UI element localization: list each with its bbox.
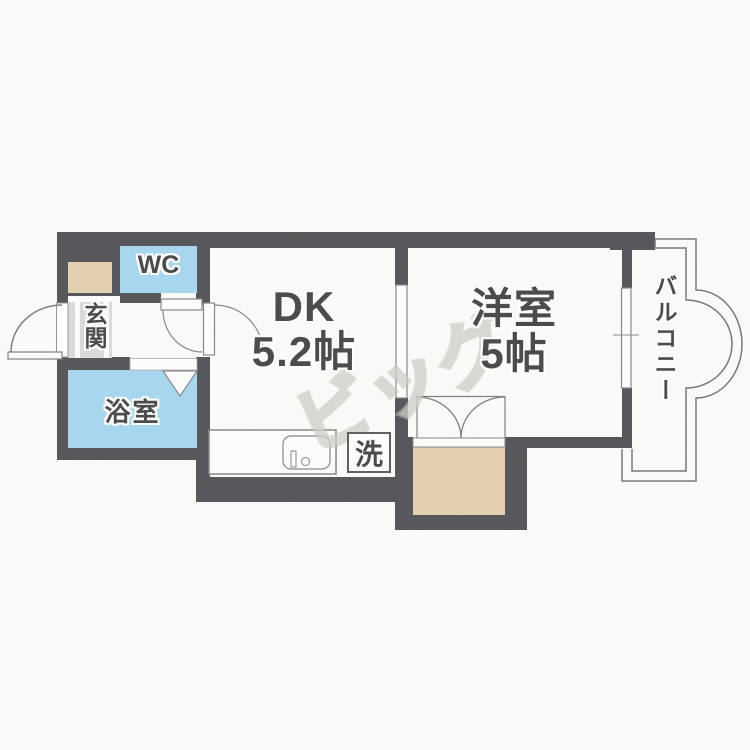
wall-left xyxy=(57,232,68,460)
dining-kitchen-name: DK xyxy=(212,284,396,329)
shoe-cabinet xyxy=(68,262,112,293)
dining-kitchen-size: 5.2帖 xyxy=(212,329,396,374)
faucet-icon xyxy=(291,451,296,467)
wall-dk-west-upper xyxy=(395,248,408,285)
wall-right-upper xyxy=(622,248,632,288)
wall-closet-bottom xyxy=(395,515,527,530)
floor-plan: ビッグ WC 玄関 浴室 DK 5.2帖 洋室 5帖 バルコニー 洗 xyxy=(0,0,750,750)
wall-bath-bottom xyxy=(57,448,210,460)
entrance-label: 玄関 xyxy=(77,302,111,362)
dining-kitchen-label: DK 5.2帖 xyxy=(212,284,396,374)
wall-below-wc xyxy=(120,293,161,303)
wall-top-right-pillar xyxy=(610,232,655,250)
western-room-name: 洋室 xyxy=(407,286,621,331)
washing-machine-box: 洗 xyxy=(347,432,391,473)
bathroom-label: 浴室 xyxy=(68,392,197,429)
western-room-label: 洋室 5帖 xyxy=(407,286,621,376)
drain-icon xyxy=(302,458,310,466)
wc-label: WC xyxy=(120,251,197,280)
closet-floor xyxy=(413,447,505,515)
western-room-size: 5帖 xyxy=(407,331,621,376)
wall-right-lower xyxy=(622,388,632,448)
wall-wc-dk xyxy=(196,232,210,305)
balcony-label: バルコニー xyxy=(647,274,681,434)
wc-door xyxy=(161,299,202,352)
wall-dk-bottom xyxy=(196,477,408,502)
balcony-outline xyxy=(622,239,742,481)
